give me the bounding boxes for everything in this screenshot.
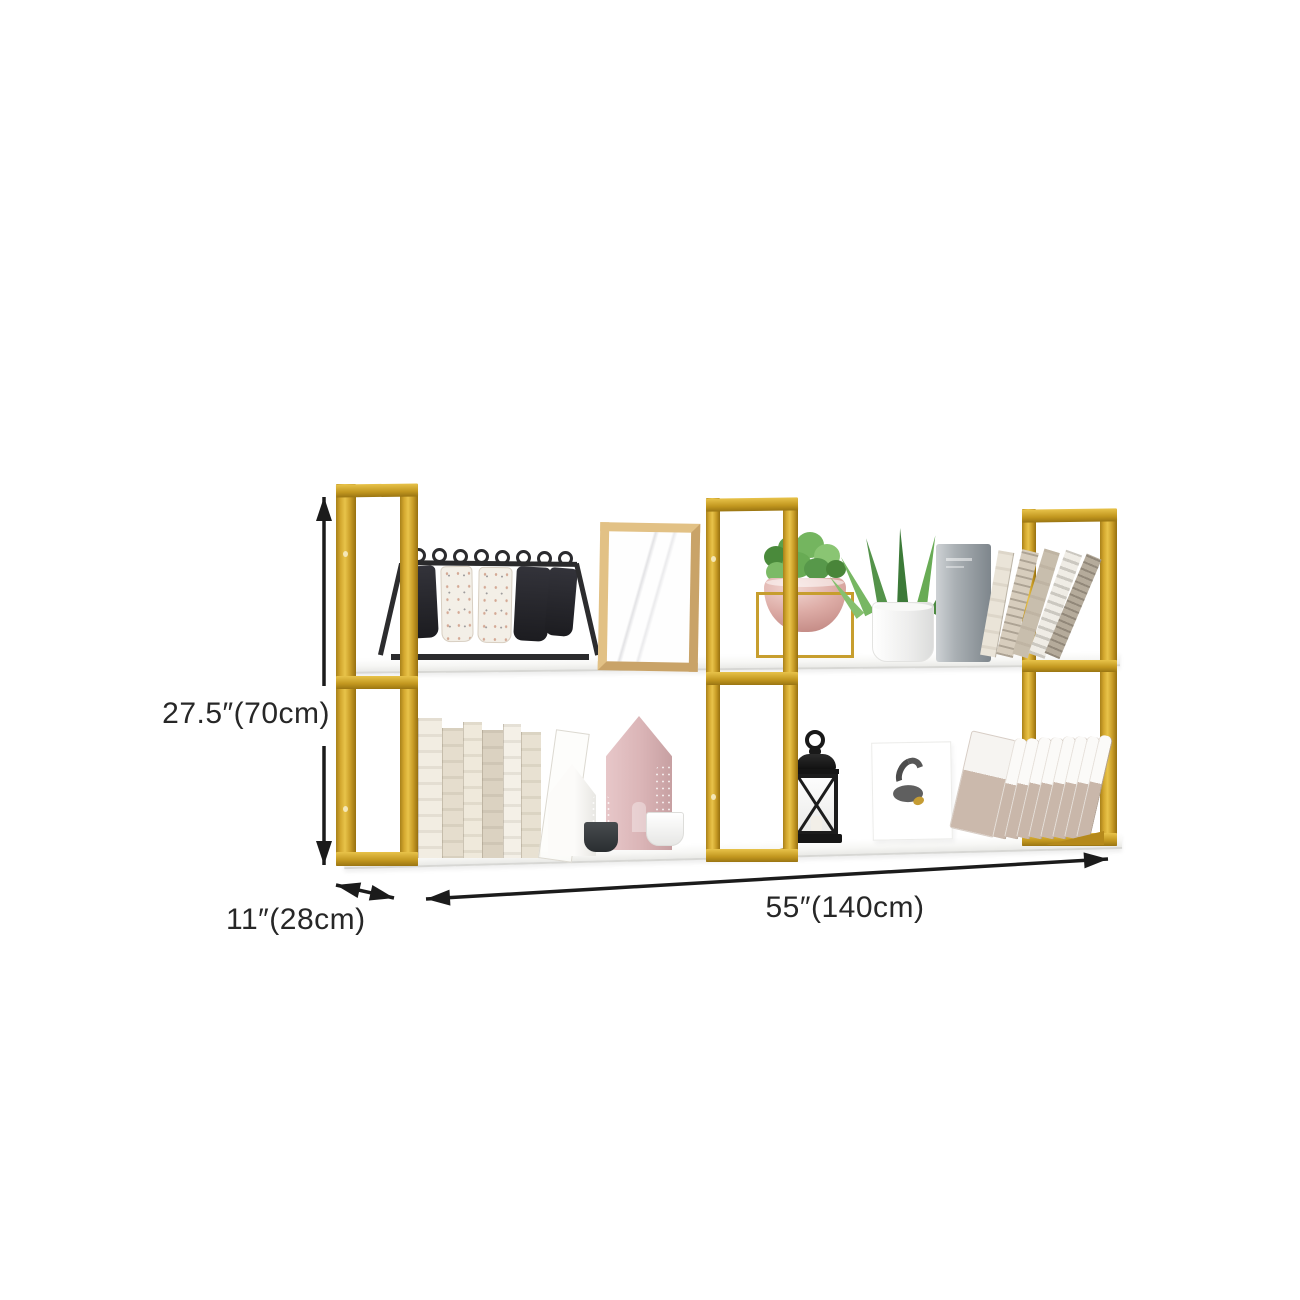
width-dimension-label: 55″(140cm)	[755, 891, 935, 925]
depth-arrow	[336, 885, 394, 898]
dimension-arrows	[0, 0, 1300, 1300]
product-dimension-image: 27.5″(70cm) 11″(28cm) 55″(140cm)	[0, 0, 1300, 1300]
depth-dimension-label: 11″(28cm)	[226, 903, 366, 937]
height-dimension-label: 27.5″(70cm)	[155, 697, 330, 731]
